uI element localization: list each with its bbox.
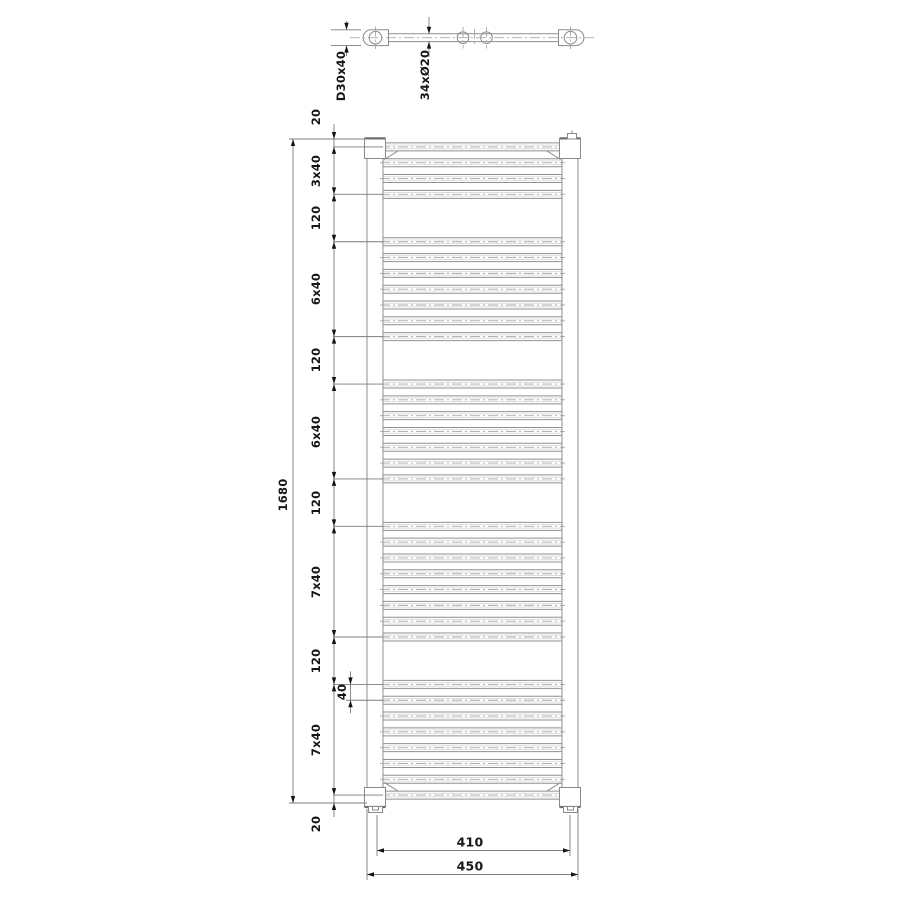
technical-drawing: D30x40 34xØ20 1680 20 3x40 120 6x40 120 … bbox=[0, 0, 900, 899]
dim-chain-bottom-20: 20 bbox=[309, 816, 323, 832]
drawing-lines bbox=[0, 0, 900, 899]
dim-overall-width-label: 450 bbox=[457, 859, 484, 874]
dim-chain-120-b: 120 bbox=[309, 348, 323, 373]
dim-chain-6x40-b: 6x40 bbox=[309, 416, 323, 448]
dim-chain-7x40-a: 7x40 bbox=[309, 566, 323, 598]
dim-chain-120-a: 120 bbox=[309, 206, 323, 231]
dim-chain-120-d: 120 bbox=[309, 649, 323, 674]
dim-center-width-label: 410 bbox=[457, 835, 484, 850]
dim-overall-height-label: 1680 bbox=[276, 479, 290, 512]
dim-chain-7x40-b: 7x40 bbox=[309, 724, 323, 756]
dim-rung-count-diameter-label: 34xØ20 bbox=[418, 50, 432, 100]
dim-chain-3x40: 3x40 bbox=[309, 155, 323, 187]
dim-rung-spacing-label: 40 bbox=[335, 684, 349, 700]
dim-chain-top-20: 20 bbox=[309, 109, 323, 125]
dim-chain-6x40-a: 6x40 bbox=[309, 273, 323, 305]
dim-profile-label: D30x40 bbox=[334, 51, 348, 101]
dim-chain-120-c: 120 bbox=[309, 491, 323, 516]
